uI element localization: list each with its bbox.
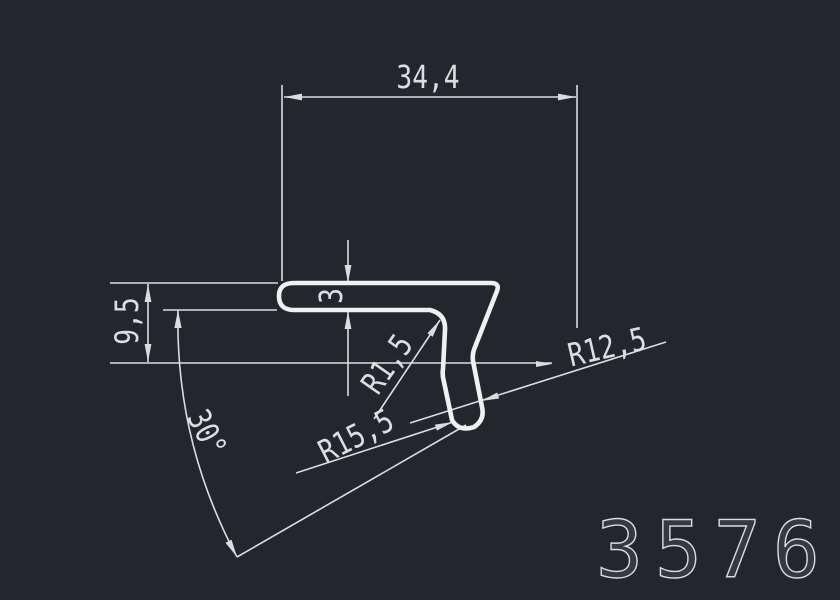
dim-thickness-label: 3: [315, 288, 347, 304]
arrow-height-bottom: [145, 344, 152, 362]
arrowheads: [145, 94, 576, 557]
arrow-thickness-top: [345, 265, 352, 283]
arrow-width-right: [558, 94, 576, 101]
arrow-radius-inner: [427, 320, 440, 337]
cad-drawing-canvas: 34,4 9,5 3 R1,5 R15,5 R12,5 30° 3576: [0, 0, 840, 600]
arrow-arc-bottom: [226, 540, 238, 557]
arrow-arc-top: [174, 310, 181, 328]
arrow-thickness-bottom: [345, 311, 352, 329]
arrow-extension-end: [536, 361, 552, 367]
dim-width-label: 34,4: [396, 61, 459, 93]
arrow-radius-lower: [435, 422, 453, 431]
arrow-radius-outer: [481, 393, 499, 402]
part-number: 3576: [596, 512, 832, 590]
dim-height-label: 9,5: [111, 297, 143, 344]
dimension-lines: [110, 85, 666, 557]
arrow-width-left: [284, 94, 302, 101]
